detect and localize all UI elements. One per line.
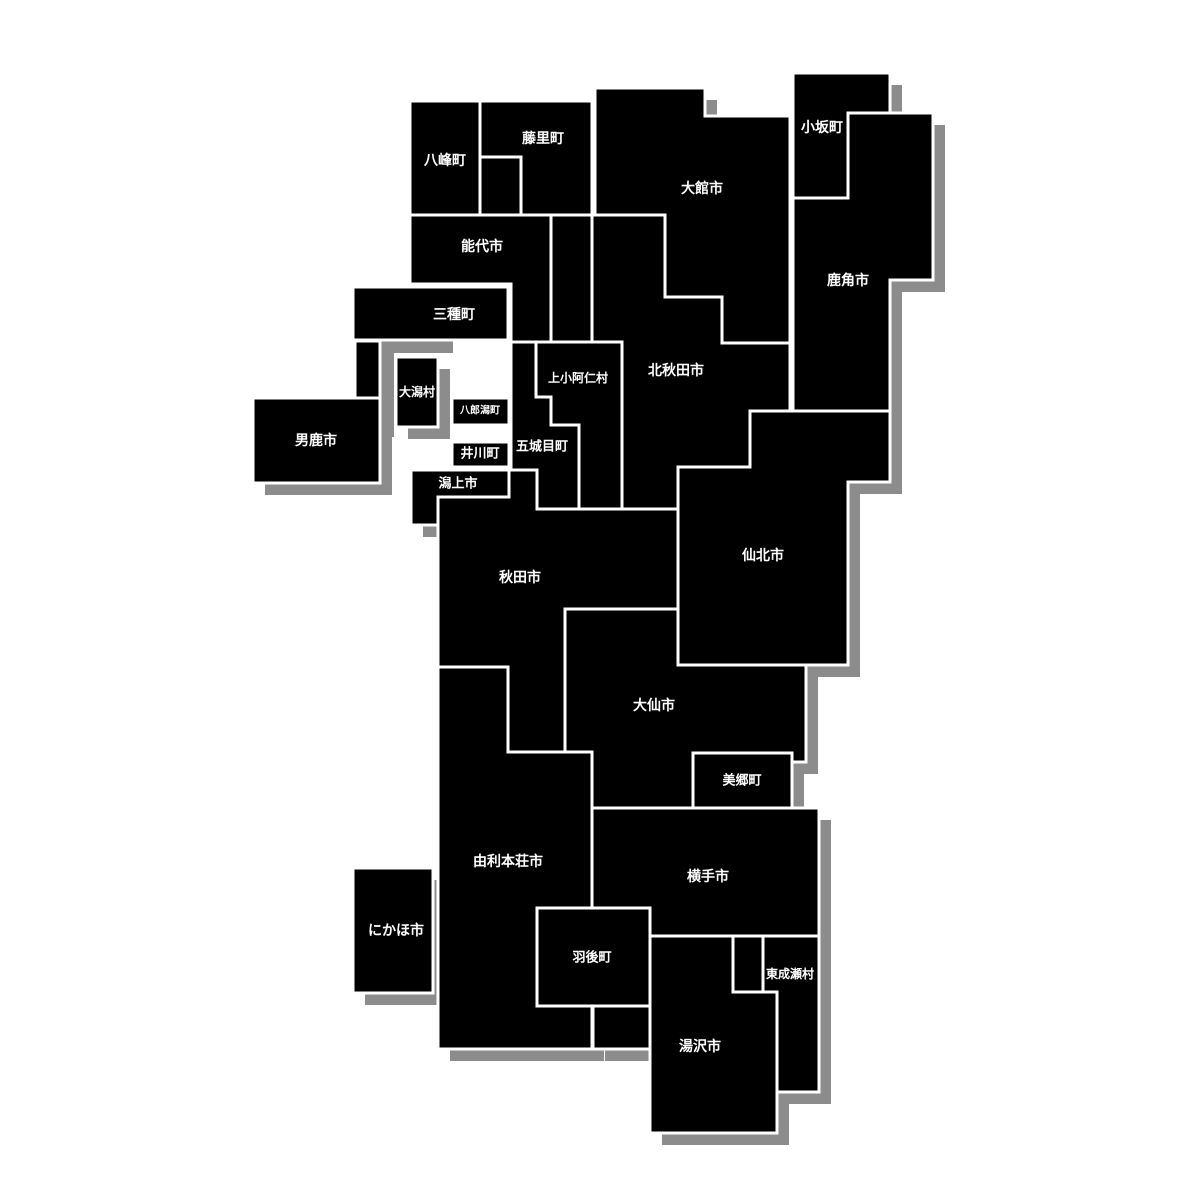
municipality-unlabeled-a[interactable] (480, 157, 521, 215)
akita-municipality-tile-map: 八峰町藤里町能代市大館市小坂町鹿角市北秋田市三種町大潟村上小阿仁村五城目町八郎潟… (0, 0, 1200, 1200)
municipality-ugo[interactable] (537, 908, 650, 1006)
municipality-oga[interactable] (253, 398, 380, 483)
municipality-unlabeled-e[interactable] (355, 341, 380, 398)
municipality-happo[interactable] (410, 101, 480, 215)
municipality-unlabeled-d[interactable] (593, 1006, 650, 1049)
municipality-unlabeled-c[interactable] (733, 936, 763, 992)
map-svg: 八峰町藤里町能代市大館市小坂町鹿角市北秋田市三種町大潟村上小阿仁村五城目町八郎潟… (0, 0, 1200, 1200)
municipality-unlabeled-b[interactable] (551, 215, 592, 342)
municipality-hachirogata[interactable] (452, 398, 509, 425)
municipality-ogata[interactable] (396, 357, 438, 427)
municipality-nikaho[interactable] (353, 868, 433, 993)
municipality-misato[interactable] (693, 753, 792, 808)
municipality-mitane[interactable] (353, 287, 508, 340)
municipality-ikawa[interactable] (452, 442, 509, 467)
